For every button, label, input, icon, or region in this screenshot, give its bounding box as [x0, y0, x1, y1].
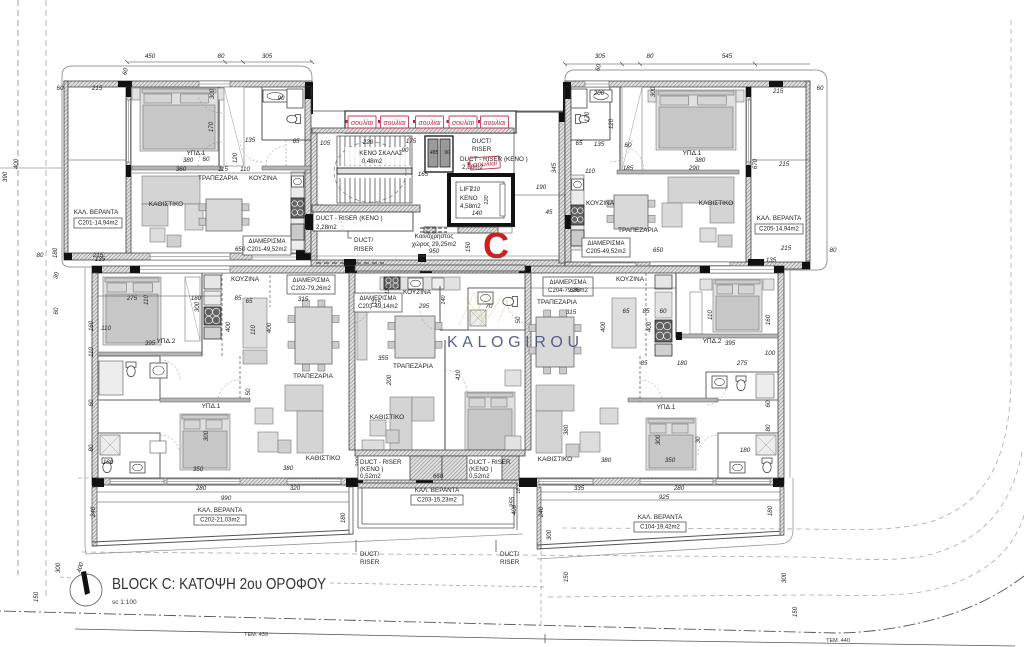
svg-text:50: 50: [515, 316, 522, 323]
svg-text:215: 215: [780, 245, 792, 252]
svg-text:120: 120: [484, 194, 490, 204]
svg-text:sc 1:100: sc 1:100: [112, 599, 137, 606]
svg-text:290: 290: [688, 165, 700, 172]
svg-text:ΔΙΑΜΕΡΙΣΜΑ: ΔΙΑΜΕΡΙΣΜΑ: [549, 280, 586, 286]
svg-text:240: 240: [90, 506, 97, 518]
svg-text:60: 60: [817, 85, 824, 92]
svg-text:110: 110: [385, 285, 391, 295]
svg-text:RISER: RISER: [500, 559, 520, 566]
svg-text:C203-15,23m2: C203-15,23m2: [417, 497, 457, 503]
svg-text:65: 65: [623, 308, 630, 315]
svg-text:ΚΟΥΖΙΝΑ: ΚΟΥΖΙΝΑ: [249, 175, 278, 182]
svg-text:150: 150: [465, 241, 472, 252]
svg-text:C201-49,52m2: C201-49,52m2: [247, 247, 287, 253]
svg-text:110: 110: [88, 347, 95, 357]
svg-text:215: 215: [91, 85, 103, 92]
svg-text:ΚΑΛ. ΒΕΡΑΝΤΑ: ΚΑΛ. ΒΕΡΑΝΤΑ: [757, 215, 802, 222]
svg-text:ΔΙΑΜΕΡΙΣΜΑ: ΔΙΑΜΕΡΙΣΜΑ: [248, 239, 285, 245]
svg-text:C202-21,03m2: C202-21,03m2: [200, 517, 240, 523]
svg-text:175: 175: [406, 138, 417, 145]
svg-text:360: 360: [176, 166, 187, 173]
svg-text:100: 100: [765, 350, 776, 357]
svg-text:160: 160: [765, 314, 772, 325]
svg-text:135: 135: [95, 256, 106, 263]
svg-text:180: 180: [52, 247, 59, 258]
svg-text:105: 105: [320, 140, 331, 147]
svg-text:355: 355: [378, 355, 389, 362]
svg-text:925: 925: [659, 494, 670, 501]
svg-text:140: 140: [441, 294, 447, 304]
svg-text:0,52m2: 0,52m2: [469, 473, 490, 480]
svg-text:280: 280: [673, 485, 685, 492]
svg-text:135: 135: [245, 137, 256, 144]
svg-text:80: 80: [218, 53, 225, 60]
svg-text:400: 400: [511, 504, 518, 515]
svg-text:60: 60: [660, 308, 667, 315]
svg-text:σουλίαι: σουλίαι: [452, 119, 474, 127]
svg-text:C: C: [483, 225, 509, 266]
svg-text:C205-14,94m2: C205-14,94m2: [759, 226, 799, 232]
svg-text:400: 400: [600, 321, 607, 332]
svg-text:ΚΟΥΖΙΝΑ: ΚΟΥΖΙΝΑ: [403, 289, 432, 296]
svg-text:110: 110: [240, 166, 250, 173]
svg-text:2,28m2: 2,28m2: [316, 224, 337, 231]
svg-text:ΚΑΛ. ΒΕΡΑΝΤΑ: ΚΑΛ. ΒΕΡΑΝΤΑ: [198, 507, 243, 514]
svg-text:135: 135: [766, 257, 777, 264]
svg-text:300: 300: [55, 562, 62, 573]
svg-text:380: 380: [183, 157, 194, 164]
svg-text:60: 60: [765, 400, 772, 407]
svg-text:BLOCK C: ΚΑΤΟΨΗ 2ου ΟΡΟΦΟΥ: BLOCK C: ΚΑΤΟΨΗ 2ου ΟΡΟΦΟΥ: [112, 576, 326, 593]
svg-text:410: 410: [455, 369, 462, 380]
svg-text:σουλίαι: σουλίαι: [351, 119, 373, 127]
svg-text:85: 85: [235, 295, 242, 302]
svg-text:90: 90: [444, 150, 450, 156]
svg-text:χώρος 29,25m2: χώρος 29,25m2: [412, 240, 457, 248]
svg-text:400: 400: [13, 158, 20, 169]
svg-text:115: 115: [218, 166, 228, 173]
svg-text:70: 70: [486, 303, 493, 310]
svg-text:300: 300: [781, 572, 788, 583]
svg-text:545: 545: [722, 53, 733, 60]
svg-text:4,58m2: 4,58m2: [460, 203, 481, 210]
svg-text:150: 150: [563, 571, 570, 582]
svg-text:380: 380: [695, 157, 706, 164]
svg-text:150: 150: [33, 591, 40, 602]
svg-text:110: 110: [250, 325, 257, 335]
svg-text:350: 350: [193, 466, 204, 473]
svg-text:60: 60: [203, 156, 210, 163]
svg-text:ΤΕΜ. 439: ΤΕΜ. 439: [244, 632, 268, 638]
svg-text:380: 380: [283, 465, 294, 472]
svg-text:305: 305: [595, 53, 606, 60]
svg-text:σουλίαι: σουλίαι: [384, 119, 406, 127]
svg-text:485: 485: [430, 150, 439, 156]
svg-text:120: 120: [232, 152, 239, 163]
svg-text:345: 345: [551, 162, 558, 173]
svg-text:990: 990: [221, 495, 232, 502]
svg-text:395: 395: [145, 340, 156, 347]
svg-text:300: 300: [203, 430, 210, 441]
svg-text:300: 300: [655, 434, 662, 445]
svg-text:110: 110: [101, 325, 111, 332]
svg-text:ΚΑΛ. ΒΕΡΑΝΤΑ: ΚΑΛ. ΒΕΡΑΝΤΑ: [415, 487, 460, 494]
svg-text:0,52m2: 0,52m2: [360, 473, 381, 480]
svg-text:65: 65: [293, 138, 300, 145]
svg-text:DUCT - RISER (KENO ): DUCT - RISER (KENO ): [316, 215, 383, 222]
svg-text:280: 280: [195, 485, 207, 492]
svg-text:650: 650: [235, 246, 246, 253]
svg-text:200: 200: [593, 90, 605, 97]
svg-text:45: 45: [546, 209, 553, 216]
svg-text:90: 90: [278, 95, 285, 102]
svg-text:ΚΑΘΙΣΤΙΚΟ: ΚΑΘΙΣΤΙΚΟ: [370, 414, 404, 421]
svg-text:150: 150: [792, 606, 799, 617]
svg-text:DUCT - RISER: DUCT - RISER: [469, 459, 511, 466]
svg-text:170: 170: [208, 121, 215, 132]
svg-text:(ΚΕΝΟ ): (ΚΕΝΟ ): [469, 466, 492, 473]
svg-text:335: 335: [574, 485, 585, 492]
svg-text:300: 300: [546, 529, 553, 540]
svg-text:ΤΡΑΠΕΖΑΡΙΑ: ΤΡΑΠΕΖΑΡΙΑ: [198, 175, 239, 182]
svg-text:ΥΠΔ.1: ΥΠΔ.1: [683, 150, 702, 157]
svg-text:295: 295: [418, 303, 430, 310]
svg-text:60: 60: [53, 307, 60, 314]
svg-text:120: 120: [608, 118, 615, 129]
svg-text:110: 110: [707, 310, 714, 320]
svg-text:ΚΑΘΙΣΤΙΚΟ: ΚΑΘΙΣΤΙΚΟ: [306, 455, 340, 462]
svg-text:170: 170: [584, 111, 591, 122]
svg-text:C201-14,94m2: C201-14,94m2: [78, 220, 118, 226]
svg-text:380: 380: [601, 457, 612, 464]
svg-text:180: 180: [740, 447, 751, 454]
svg-text:80: 80: [830, 247, 837, 254]
svg-text:240: 240: [538, 506, 545, 518]
svg-text:65: 65: [576, 140, 583, 147]
svg-text:DUCT/: DUCT/: [354, 237, 373, 244]
svg-text:180: 180: [677, 360, 688, 367]
svg-text:300: 300: [209, 88, 216, 99]
svg-text:0,48m2: 0,48m2: [362, 158, 383, 165]
svg-text:60: 60: [88, 399, 95, 406]
svg-text:80: 80: [647, 53, 654, 60]
svg-text:115: 115: [371, 299, 381, 306]
svg-text:ΥΠΔ.2: ΥΠΔ.2: [157, 338, 176, 345]
svg-text:85: 85: [641, 360, 648, 367]
svg-text:210: 210: [469, 187, 481, 193]
svg-text:ΚΟΥΖΙΝΑ: ΚΟΥΖΙΝΑ: [231, 276, 260, 283]
svg-text:180: 180: [767, 505, 774, 516]
svg-text:18: 18: [516, 488, 522, 494]
svg-text:ΤΡΑΠΕΖΑΡΙΑ: ΤΡΑΠΕΖΑΡΙΑ: [618, 227, 659, 234]
svg-text:80: 80: [37, 252, 44, 259]
svg-text:ΚΑΛ. ΒΕΡΑΝΤΑ: ΚΑΛ. ΒΕΡΑΝΤΑ: [74, 209, 119, 216]
svg-text:950: 950: [429, 248, 440, 255]
svg-text:300: 300: [194, 301, 201, 312]
svg-text:90: 90: [402, 147, 409, 154]
svg-text:400: 400: [266, 322, 273, 333]
svg-text:80: 80: [88, 444, 95, 451]
svg-text:KALOGIROU: KALOGIROU: [447, 334, 583, 351]
svg-text:RISER: RISER: [354, 246, 374, 253]
svg-text:σουλίαι: σουλίαι: [484, 119, 506, 127]
svg-text:ΚΑΘΙΣΤΙΚΟ: ΚΑΘΙΣΤΙΚΟ: [699, 200, 733, 207]
svg-text:RISER: RISER: [472, 146, 492, 153]
svg-text:RISER: RISER: [360, 559, 380, 566]
svg-text:60: 60: [625, 142, 632, 149]
svg-text:DUCT - RISER: DUCT - RISER: [360, 459, 402, 466]
svg-text:275: 275: [736, 360, 748, 367]
svg-text:C104-19,42m2: C104-19,42m2: [640, 524, 680, 530]
svg-text:ΤΡΑΠΕΖΑΡΙΑ: ΤΡΑΠΕΖΑΡΙΑ: [537, 299, 578, 306]
svg-text:80: 80: [765, 424, 772, 431]
svg-text:C202-79,26m2: C202-79,26m2: [291, 286, 331, 292]
svg-text:660: 660: [433, 473, 444, 480]
svg-text:ΚΕΝΟ ΣΚΑΛΑΣ: ΚΕΝΟ ΣΚΑΛΑΣ: [359, 150, 403, 157]
svg-text:220: 220: [362, 139, 374, 146]
svg-text:135: 135: [594, 141, 605, 148]
svg-text:ΚΑΘΙΣΤΙΚΟ: ΚΑΘΙΣΤΙΚΟ: [538, 456, 572, 463]
svg-text:σουλίαι: σουλίαι: [419, 119, 441, 127]
svg-text:140: 140: [472, 210, 483, 217]
svg-text:ΔΙΑΜΕΡΙΣΜΑ: ΔΙΑΜΕΡΙΣΜΑ: [587, 241, 624, 247]
svg-text:390: 390: [2, 171, 9, 182]
svg-text:DUCT/: DUCT/: [500, 551, 519, 558]
svg-text:215: 215: [778, 161, 790, 168]
svg-text:650: 650: [653, 247, 664, 254]
svg-text:395: 395: [725, 340, 736, 347]
svg-text:ΚΟΥΖΙΝΑ: ΚΟΥΖΙΝΑ: [616, 276, 645, 283]
svg-text:ΚΑΘΙΣΤΙΚΟ: ΚΑΘΙΣΤΙΚΟ: [149, 201, 183, 208]
svg-text:(ΚΕΝΟ ): (ΚΕΝΟ ): [360, 466, 383, 473]
svg-text:320: 320: [290, 485, 301, 492]
svg-text:450: 450: [145, 53, 156, 60]
svg-text:ΔΙΑΜΕΡΙΣΜΑ: ΔΙΑΜΕΡΙΣΜΑ: [292, 278, 329, 284]
svg-text:DUCT/: DUCT/: [360, 551, 379, 558]
svg-text:300: 300: [650, 86, 657, 97]
svg-text:ΤΡΑΠΕΖΑΡΙΑ: ΤΡΑΠΕΖΑΡΙΑ: [293, 373, 334, 380]
svg-text:180: 180: [340, 512, 347, 523]
svg-text:C205-49,52m2: C205-49,52m2: [586, 249, 626, 255]
svg-text:C204-79,26m2: C204-79,26m2: [548, 288, 588, 294]
svg-text:180: 180: [103, 459, 114, 466]
svg-text:65: 65: [246, 298, 253, 305]
svg-text:400: 400: [225, 321, 232, 332]
svg-text:Κοινόχρηστος: Κοινόχρηστος: [415, 232, 454, 240]
svg-text:DUCT/: DUCT/: [472, 138, 491, 145]
svg-text:ΚΟΥΖΙΝΑ: ΚΟΥΖΙΝΑ: [586, 200, 615, 207]
svg-text:ΚΑΛ. ΒΕΡΑΝΤΑ: ΚΑΛ. ΒΕΡΑΝΤΑ: [638, 514, 683, 521]
svg-text:ΤΡΑΠΕΖΑΡΙΑ: ΤΡΑΠΕΖΑΡΙΑ: [393, 363, 434, 370]
svg-text:315: 315: [298, 296, 309, 303]
svg-text:60: 60: [57, 85, 64, 92]
svg-text:50: 50: [245, 388, 252, 395]
svg-text:200: 200: [386, 374, 393, 386]
svg-text:185: 185: [623, 165, 634, 172]
svg-text:30: 30: [695, 436, 702, 443]
svg-text:215: 215: [772, 88, 784, 95]
svg-text:ΚΕΝΟ: ΚΕΝΟ: [460, 195, 478, 202]
svg-text:110: 110: [585, 168, 595, 175]
svg-text:ΤΕΜ. 440: ΤΕΜ. 440: [826, 638, 850, 644]
svg-text:190: 190: [536, 184, 547, 191]
svg-text:315: 315: [566, 309, 577, 316]
svg-text:ΥΠΔ.1: ΥΠΔ.1: [657, 404, 676, 411]
svg-text:350: 350: [665, 457, 676, 464]
svg-text:400: 400: [646, 321, 653, 332]
svg-text:380: 380: [563, 424, 570, 435]
svg-text:ΥΠΔ.2: ΥΠΔ.2: [703, 338, 722, 345]
svg-text:305: 305: [262, 53, 273, 60]
svg-text:ΥΠΔ.1: ΥΠΔ.1: [202, 403, 221, 410]
svg-text:160: 160: [88, 320, 95, 331]
